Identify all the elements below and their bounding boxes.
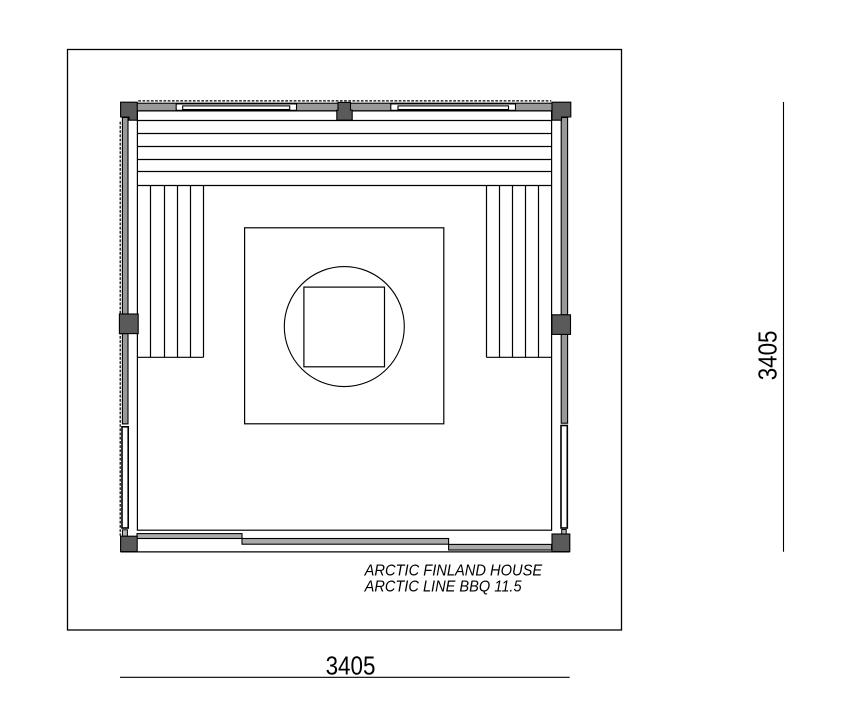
svg-text:ARCTIC LINE BBQ 11.5: ARCTIC LINE BBQ 11.5 bbox=[364, 579, 522, 596]
svg-text:3405: 3405 bbox=[752, 331, 782, 381]
svg-text:ARCTIC FINLAND HOUSE: ARCTIC FINLAND HOUSE bbox=[364, 563, 543, 580]
svg-text:3405: 3405 bbox=[326, 651, 376, 681]
